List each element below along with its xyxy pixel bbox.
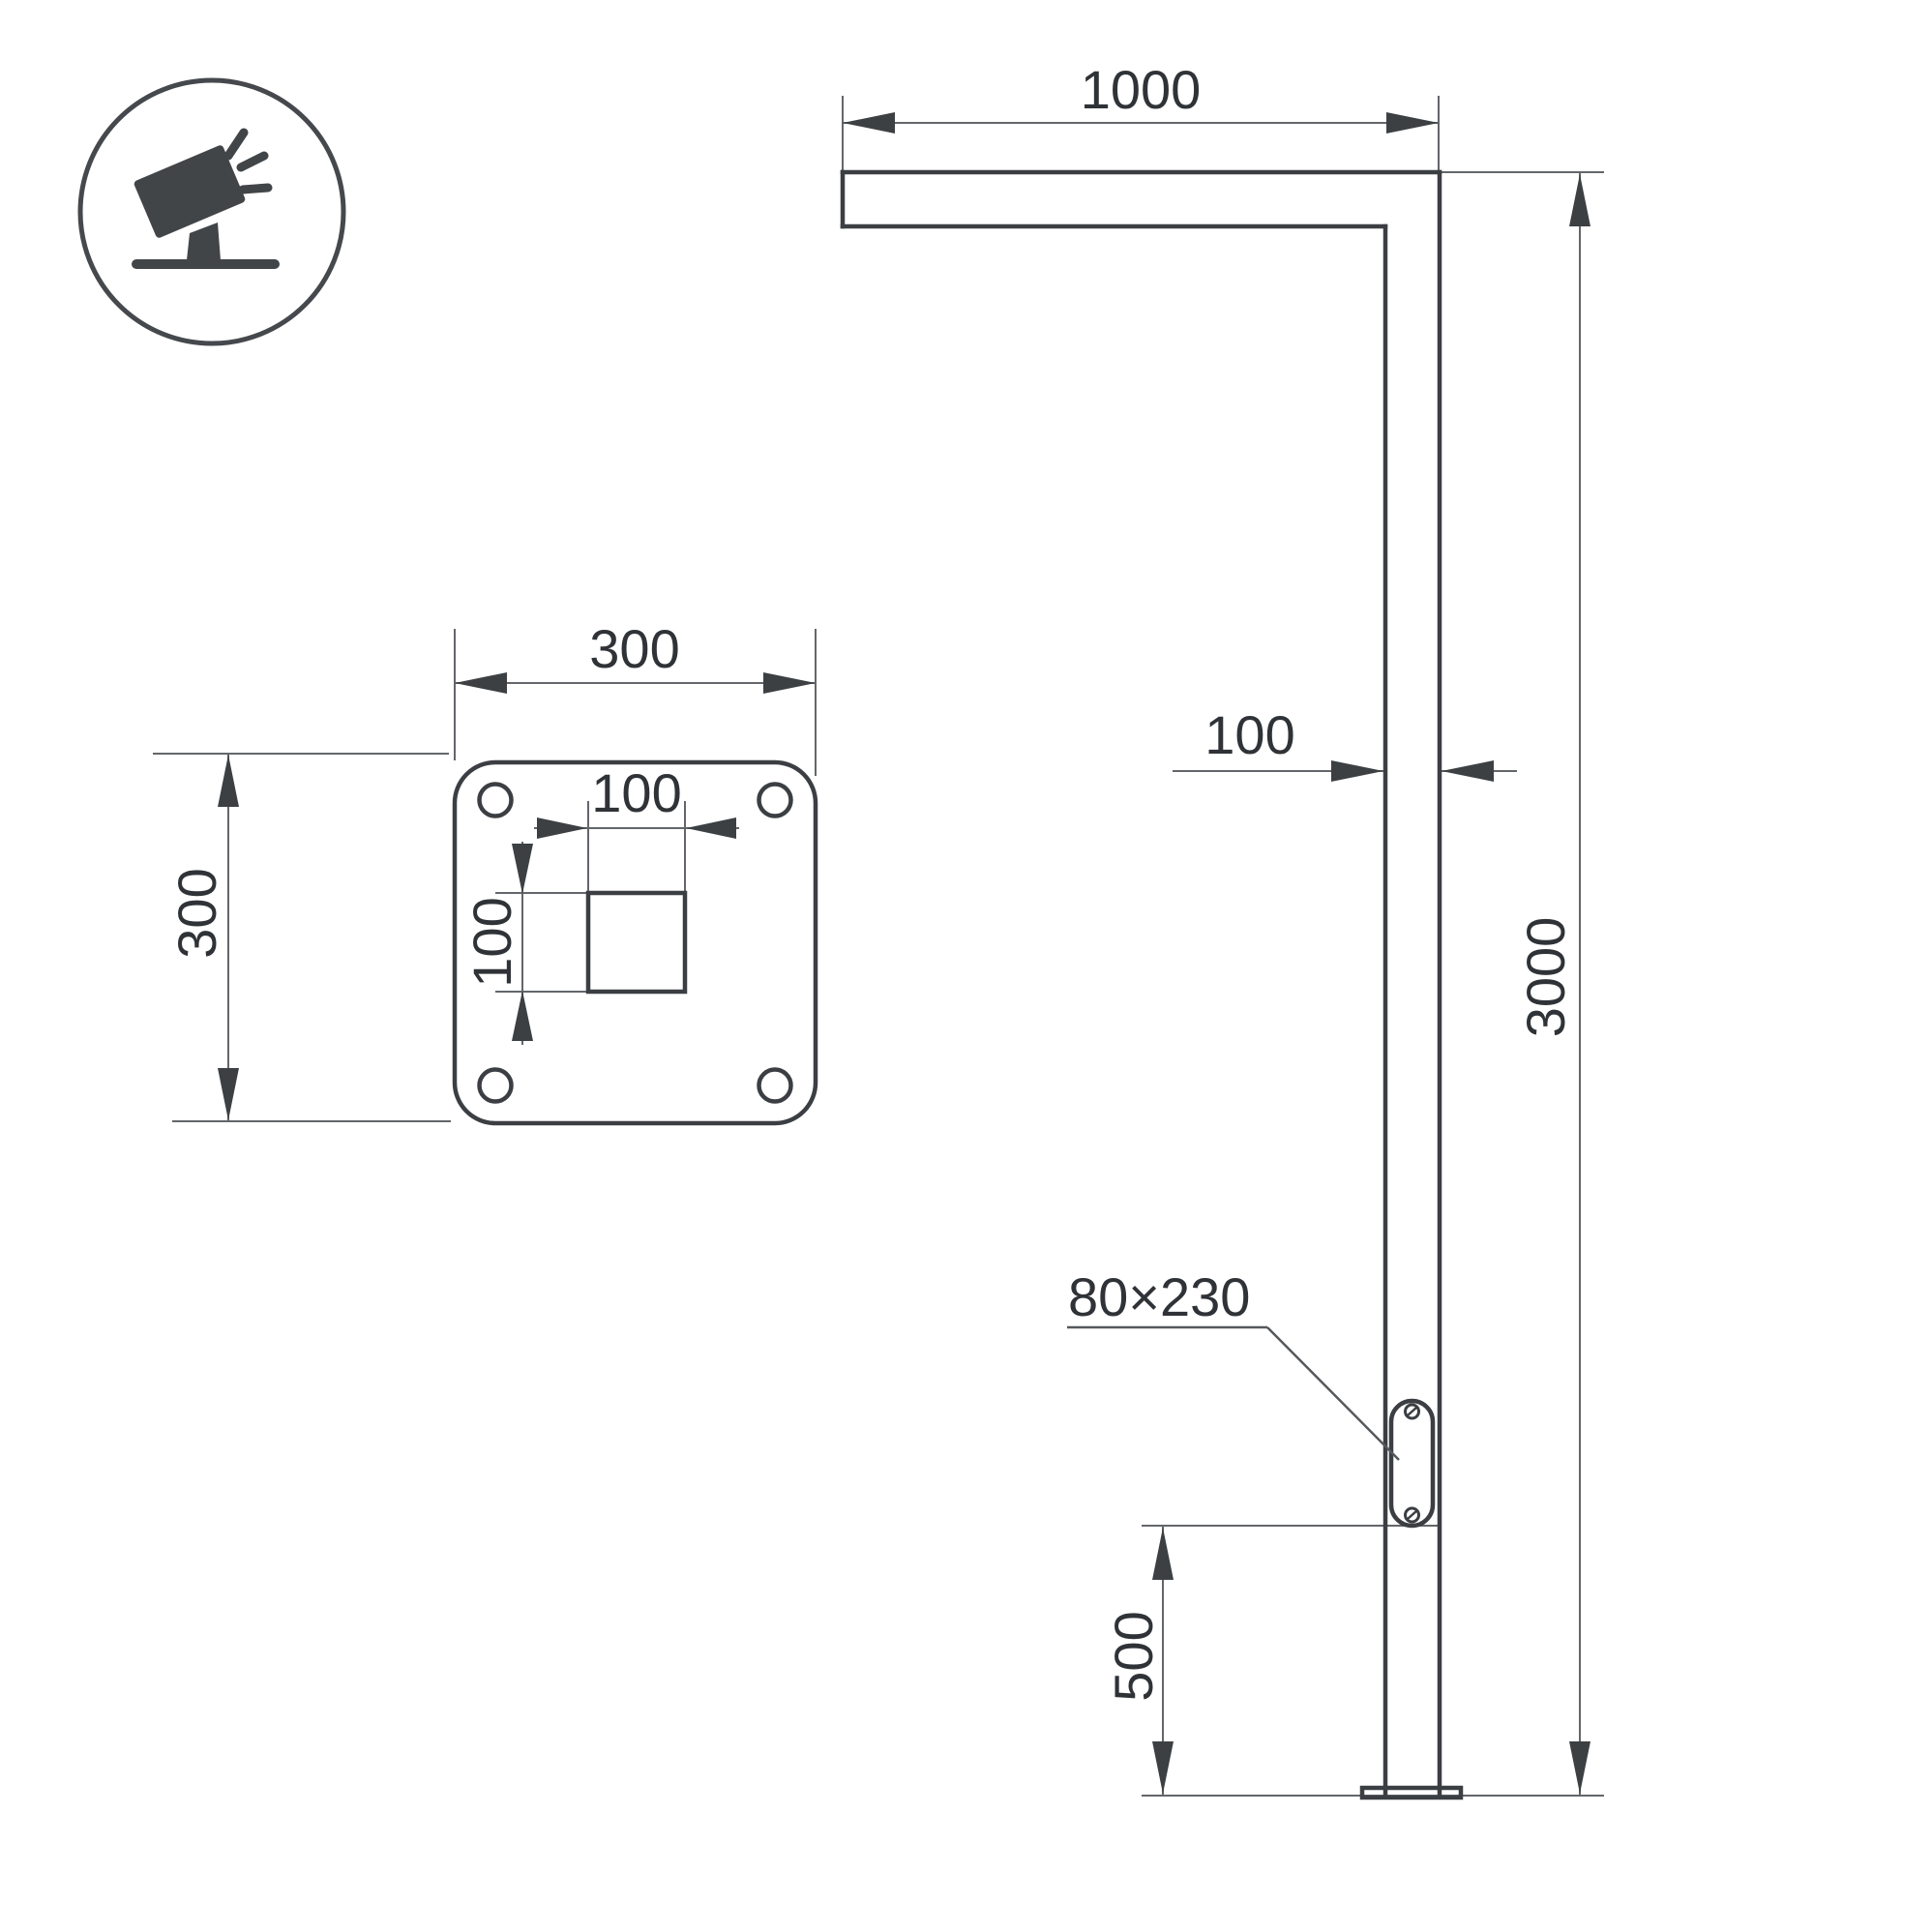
hole-width-label: 100 — [591, 762, 681, 823]
street-pole-drawing: 300 300 100 — [0, 0, 1932, 1932]
light-ray-top — [228, 133, 244, 156]
floodlight-stand — [187, 223, 221, 260]
arrowhead-right — [1386, 112, 1439, 134]
dim-plate-height: 300 — [153, 754, 451, 1121]
pole-socket-hole — [588, 893, 685, 992]
dim-pole-width: 100 — [1173, 704, 1517, 782]
dim-pole-height: 3000 — [1442, 172, 1604, 1795]
tilted-floodlight-icon — [80, 80, 343, 343]
arm-length-label: 1000 — [1081, 59, 1202, 120]
arrowhead-top — [1152, 1528, 1174, 1580]
arrowhead-bottom — [218, 1068, 239, 1120]
pole-side-view: 1000 100 3000 500 — [843, 59, 1604, 1798]
base-plate-top-view: 300 300 100 — [153, 618, 816, 1123]
arrowhead-left — [1331, 760, 1383, 782]
arrowhead-top — [218, 755, 239, 807]
hole-height-label: 100 — [461, 897, 522, 987]
arrowhead-right — [1442, 760, 1494, 782]
arrowhead-left — [843, 112, 895, 134]
light-ray-middle — [241, 156, 264, 167]
dim-plate-width: 300 — [455, 618, 816, 776]
technical-drawing-canvas: 300 300 100 — [0, 0, 1932, 1932]
arrowhead-bottom — [1152, 1741, 1174, 1794]
callout-leader-line — [1267, 1327, 1399, 1460]
light-ray-bottom — [243, 188, 268, 190]
foot-plate — [1362, 1788, 1461, 1798]
door-size-label: 80×230 — [1068, 1266, 1250, 1327]
door-size-callout: 80×230 — [1067, 1266, 1399, 1460]
pole-height-label: 3000 — [1515, 917, 1576, 1038]
pole-width-label: 100 — [1204, 704, 1294, 765]
arrowhead-top — [1569, 174, 1590, 226]
dim-door-offset: 500 — [1103, 1526, 1604, 1796]
access-door — [1391, 1401, 1433, 1526]
plate-height-label: 300 — [166, 868, 227, 958]
pole-outline — [843, 172, 1461, 1798]
arrowhead-right — [763, 672, 816, 694]
plate-width-label: 300 — [589, 618, 679, 679]
dim-arm-length: 1000 — [843, 59, 1439, 170]
arrowhead-left — [455, 672, 507, 694]
arrowhead-bottom — [1569, 1741, 1590, 1794]
door-offset-label: 500 — [1103, 1611, 1164, 1701]
